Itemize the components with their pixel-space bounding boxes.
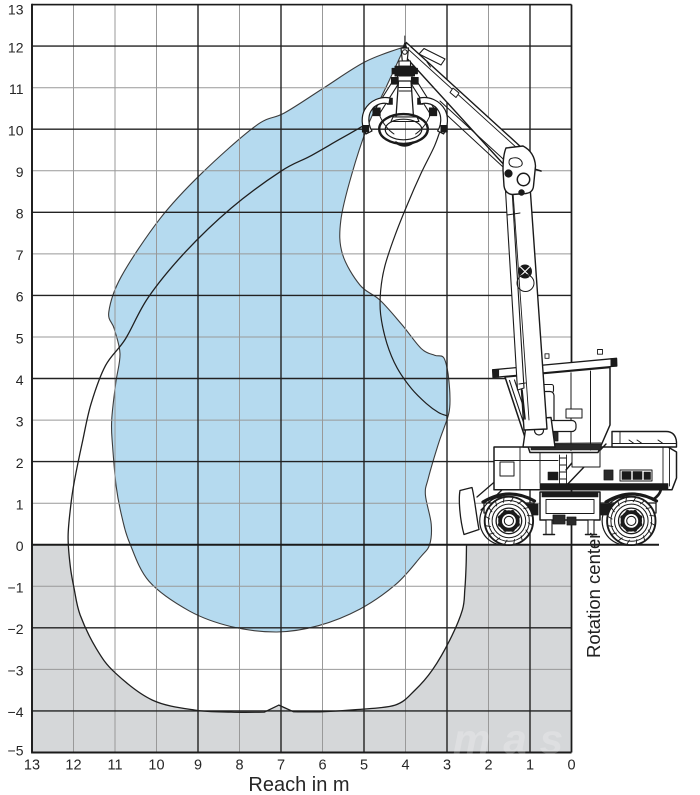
svg-text:3: 3: [443, 758, 451, 774]
svg-text:6: 6: [318, 758, 326, 774]
svg-text:12: 12: [8, 39, 24, 55]
svg-text:11: 11: [9, 81, 24, 97]
svg-text:5: 5: [16, 330, 24, 346]
svg-text:7: 7: [16, 247, 24, 263]
svg-text:3: 3: [16, 413, 24, 429]
svg-text:11: 11: [107, 758, 122, 774]
svg-text:2: 2: [484, 758, 492, 774]
svg-text:0: 0: [16, 538, 24, 554]
svg-text:1: 1: [526, 758, 534, 774]
svg-text:8: 8: [16, 206, 24, 222]
svg-text:6: 6: [16, 289, 24, 305]
svg-text:−3: −3: [8, 663, 24, 679]
svg-text:mascus: mascus: [453, 716, 687, 763]
svg-text:10: 10: [148, 758, 164, 774]
svg-text:9: 9: [16, 164, 24, 180]
svg-text:7: 7: [277, 758, 285, 774]
svg-text:Reach in m: Reach in m: [248, 774, 349, 795]
svg-text:−4: −4: [8, 704, 24, 720]
svg-text:0: 0: [567, 758, 575, 774]
svg-text:5: 5: [360, 758, 368, 774]
svg-text:4: 4: [401, 758, 409, 774]
svg-text:9: 9: [194, 758, 202, 774]
svg-text:13: 13: [24, 758, 40, 774]
svg-text:1: 1: [16, 497, 24, 513]
svg-text:−5: −5: [8, 743, 24, 759]
svg-text:2: 2: [16, 455, 24, 471]
svg-text:−1: −1: [8, 580, 24, 596]
svg-text:8: 8: [235, 758, 243, 774]
svg-text:10: 10: [8, 123, 24, 139]
svg-text:−2: −2: [8, 621, 24, 637]
svg-text:13: 13: [8, 2, 24, 18]
svg-text:Rotation center: Rotation center: [583, 533, 604, 658]
svg-text:4: 4: [16, 372, 24, 388]
svg-text:12: 12: [65, 758, 81, 774]
